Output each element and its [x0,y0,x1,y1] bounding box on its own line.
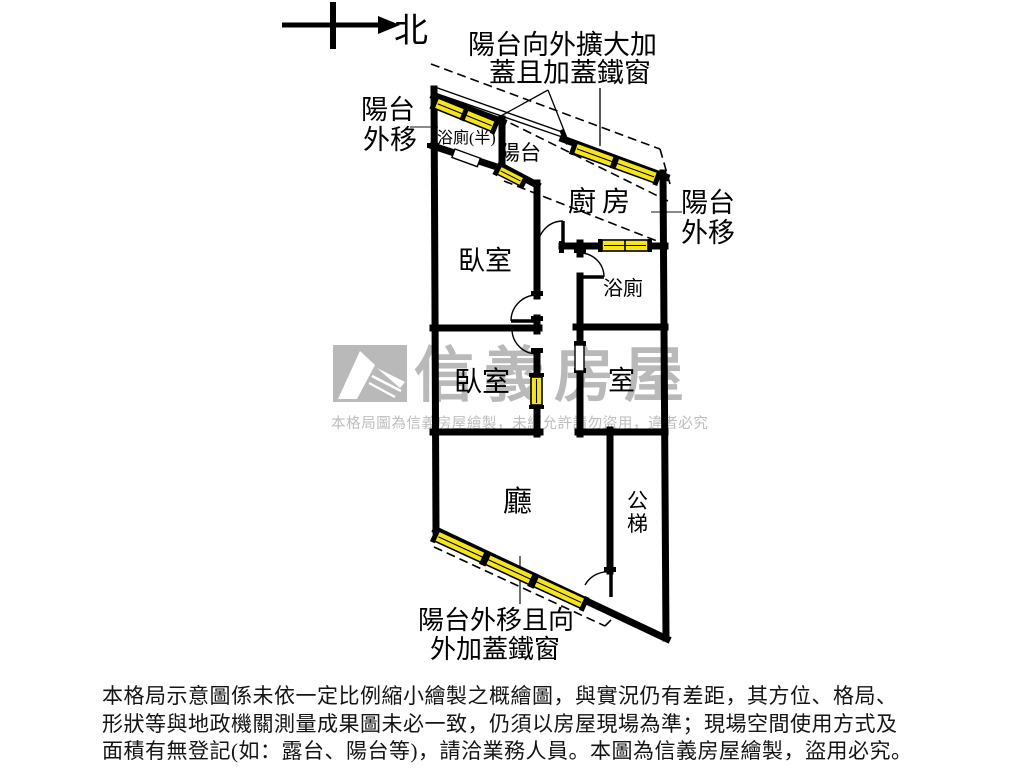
callout-top-line1: 陽台向外擴大加 [468,30,657,60]
callout-right-line1: 陽台 [681,188,735,218]
room-label-bedroom-left: 臥室 [454,366,510,398]
callout-bottom-line2: 外加蓋鐵窗 [430,635,560,664]
floorplan-svg: 北 信義房屋 本格局圖為信義房屋繪製，未經允許請勿盜用，違者必究 [0,0,1024,768]
room-label-stairs-1: 公 [627,489,648,513]
callout-bottom-line1: 陽台外移且向 [418,606,574,635]
watermark: 信義房屋 本格局圖為信義房屋繪製，未經允許請勿盜用，違者必究 [331,343,709,432]
window-kitchen-inner [598,239,652,252]
room-label-living: 廳 [503,485,532,518]
disclaimer-line3: 面積有無登記(如：露台、陽台等)，請洽業務人員。本圖為信義房屋繪製，盜用必究。 [102,738,952,766]
room-label-kitchen: 廚房 [568,186,636,218]
room-label-bedroom-right: 室 [608,366,635,396]
room-label-half-bath: 浴廁(半) [437,128,496,147]
callout-top-line2: 蓋且加蓋鐵窗 [489,58,651,88]
floorplan-page: 北 信義房屋 本格局圖為信義房屋繪製，未經允許請勿盜用，違者必究 [0,0,1024,768]
disclaimer: 本格局示意圖係未依一定比例縮小繪製之概繪圖，與實況仍有差距，其方位、格局、 形狀… [102,683,952,766]
callout-right-line2: 外移 [681,218,735,248]
door-halfbath [452,149,480,167]
wall-right [663,173,666,638]
door-bathroom-arc [580,253,604,277]
window-living-balcony [430,528,590,612]
sinyi-logo [333,345,407,402]
room-label-bedroom-top: 臥室 [458,246,512,276]
room-label-stairs-2: 梯 [627,512,648,536]
room-label-balcony: 陽台 [499,141,541,165]
room-labels: 浴廁(半) 陽台 廚房 臥室 浴廁 臥室 室 廳 公 梯 [437,128,648,536]
north-arrow: 北 [282,2,428,50]
callout-left-line2: 外移 [363,125,417,155]
north-label: 北 [394,13,428,50]
door-bedroom-right [575,345,584,371]
window-kitchen-outer [569,140,662,186]
disclaimer-line2: 形狀等與地政機關測量成果圖未必一致，仍須以房屋現場為準；現場空間使用方式及 [102,711,952,739]
window-hallway [529,373,544,409]
disclaimer-line1: 本格局示意圖係未依一定比例縮小繪製之概繪圖，與實況仍有差距，其方位、格局、 [102,683,952,711]
room-label-bathroom: 浴廁 [603,277,643,300]
wall-left [434,89,436,531]
callout-left-line1: 陽台 [361,95,415,125]
